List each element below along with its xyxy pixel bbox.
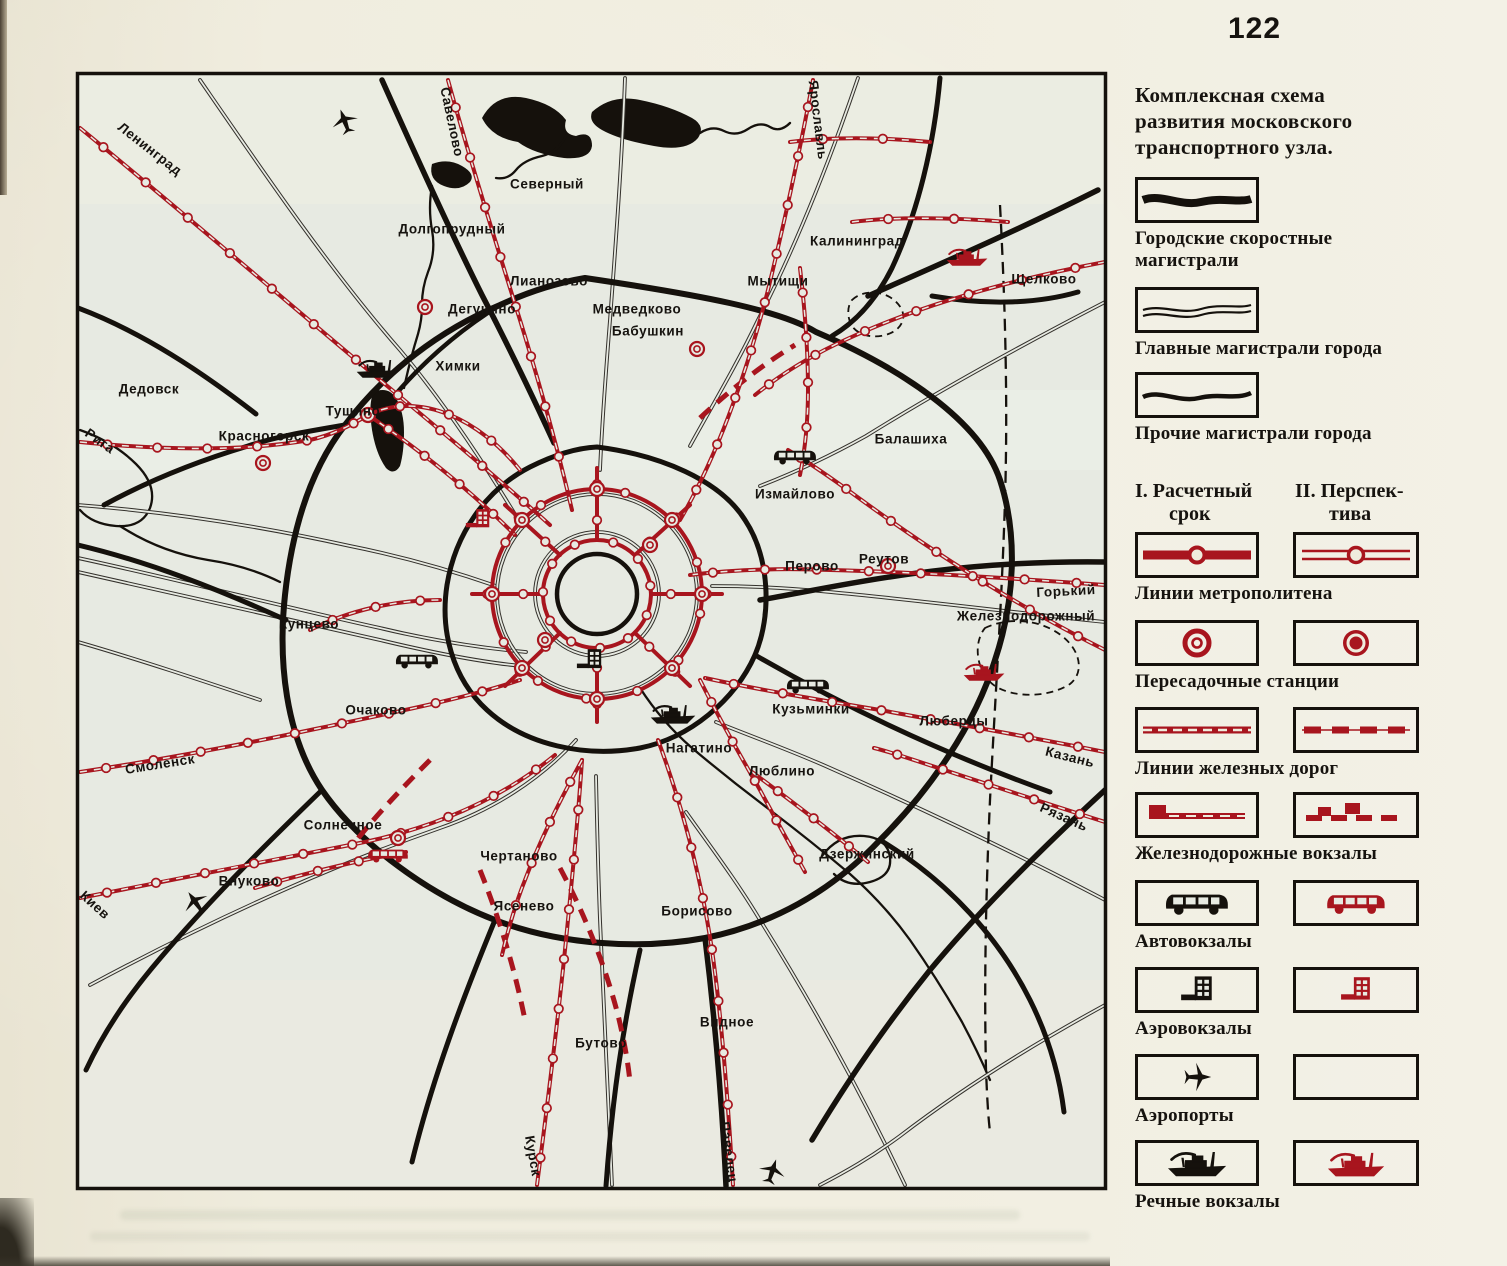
metro-line-term-swatch (1135, 532, 1259, 578)
air-terminal-perspective-swatch (1293, 967, 1419, 1013)
legend-row-transfer-stations: Пересадочные станции (1135, 620, 1440, 693)
airport-term-swatch (1135, 1054, 1259, 1100)
main-road-swatch (1135, 287, 1259, 333)
legend-label: Линии железных дорог (1135, 758, 1440, 780)
metro-line-perspective-swatch (1293, 532, 1419, 578)
map-title: Комплексная схема развития московского т… (1135, 82, 1440, 160)
other-road-swatch (1135, 372, 1259, 418)
railway-terminal-perspective-swatch (1293, 792, 1419, 838)
airport-perspective-swatch-empty (1293, 1054, 1419, 1100)
bus-terminal-term-swatch (1135, 880, 1259, 926)
railway-line-perspective-swatch (1293, 707, 1419, 753)
legend-label: Пересадочные станции (1135, 671, 1440, 693)
legend-row-river-terminals: Речные вокзалы (1135, 1140, 1440, 1213)
transfer-station-term-swatch (1135, 620, 1259, 666)
legend-row-main-roads: Главные магистрали города (1135, 287, 1440, 360)
legend-row-bus-terminals: Автовокзалы (1135, 880, 1440, 953)
bus-terminal-perspective-swatch (1293, 880, 1419, 926)
air-terminal-term-swatch (1135, 967, 1259, 1013)
railway-terminal-term-swatch (1135, 792, 1259, 838)
legend-label: Аэропорты (1135, 1105, 1440, 1127)
column-header-perspective: II. Перспек- тива (1295, 480, 1440, 526)
legend: Комплексная схема развития московского т… (1135, 82, 1440, 1232)
column-header-design-term: I. Расчетный срок (1135, 480, 1285, 526)
legend-label: Прочие магистрали города (1135, 423, 1440, 445)
legend-label: Речные вокзалы (1135, 1191, 1440, 1213)
legend-label: Городские скоростные магистрали (1135, 228, 1440, 272)
legend-row-railway-terminals: Железнодорожные вокзалы (1135, 792, 1440, 865)
legend-row-metro-lines: Линии метрополитена (1135, 532, 1440, 605)
legend-row-air-terminals: Аэровокзалы (1135, 967, 1440, 1040)
book-page: { "page_number": "122", "colors": { "red… (0, 0, 1507, 1266)
railway-line-term-swatch (1135, 707, 1259, 753)
river-terminal-perspective-swatch (1293, 1140, 1419, 1186)
transfer-station-perspective-swatch (1293, 620, 1419, 666)
legend-row-railway-lines: Линии железных дорог (1135, 707, 1440, 780)
legend-row-other-roads: Прочие магистрали города (1135, 372, 1440, 445)
legend-row-express-roads: Городские скоростные магистрали (1135, 177, 1440, 272)
express-road-swatch (1135, 177, 1259, 223)
river-terminal-term-swatch (1135, 1140, 1259, 1186)
legend-label: Железнодорожные вокзалы (1135, 843, 1440, 865)
legend-label: Аэровокзалы (1135, 1018, 1440, 1040)
map-content (78, 74, 1105, 1188)
legend-label: Главные магистрали города (1135, 338, 1440, 360)
legend-row-airports: Аэропорты (1135, 1054, 1440, 1127)
legend-label: Линии метрополитена (1135, 583, 1440, 605)
legend-label: Автовокзалы (1135, 931, 1440, 953)
